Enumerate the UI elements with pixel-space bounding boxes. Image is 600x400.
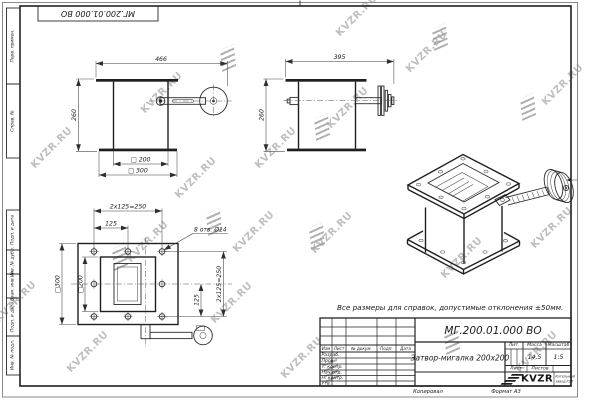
mass-value: 14,5 — [528, 354, 542, 361]
col-ndokum: № докум. — [350, 346, 372, 351]
dim-plan-pitch-right: 125 — [194, 294, 201, 306]
kvzr-logo-text: KVZR — [521, 374, 553, 385]
role-prov: Пров. — [322, 358, 335, 364]
iso-bottom-holes — [419, 239, 508, 264]
part-title-text: Затвор-мигалка 200x200 — [411, 354, 510, 363]
designation-top-box: МГ.200.01.000 ВО — [38, 6, 158, 21]
field-podp-data-2: Подп. и дата — [9, 302, 15, 332]
dim-plan-pitch-total: 2x125=250 — [110, 204, 146, 211]
field-podp-data-1: Подп. и дата — [9, 215, 15, 245]
copied-label: Копировал — [413, 389, 443, 395]
drawing-sheet: KVZR.RUKVZR.RUKVZR.RUKVZR.RUKVZR.RUKVZR.… — [0, 0, 600, 400]
role-tkontr: Т. контр. — [322, 364, 343, 370]
view-front: 466 260 □ 200 □ 300 — [71, 56, 232, 177]
company-line2: завод РЭП — [556, 379, 574, 383]
dim-front-inner: □ 200 — [131, 157, 151, 164]
col-data: Дата — [399, 346, 411, 351]
mass-label: Масса — [527, 342, 542, 348]
dim-side-width: 395 — [334, 54, 346, 61]
field-perv-primen: Перв. примен. — [9, 30, 15, 63]
dim-plan-pitch: 125 — [105, 221, 117, 228]
view-isometric — [408, 155, 577, 275]
col-list: Лист — [333, 346, 345, 351]
role-utv: Утв. — [322, 380, 332, 386]
col-izm: Изм — [322, 346, 331, 351]
title-block: МГ.200.01.000 ВО Затвор-мигалка 200x200 … — [320, 318, 576, 386]
role-nkontr: Н. контр. — [322, 375, 344, 381]
dim-plan-outer: □300 — [55, 275, 62, 293]
scale-label: Масштаб — [548, 342, 570, 348]
kvzr-logo-icon — [501, 374, 523, 385]
dim-front-width: 466 — [155, 56, 167, 63]
reference-note: Все размеры для справок, допустимые откл… — [337, 303, 563, 312]
dim-plan-pitch-total-right: 2x125=250 — [216, 266, 223, 302]
role-razrab: Разраб. — [322, 352, 340, 358]
scale-value: 1:5 — [554, 354, 564, 361]
frame-left-fields: Перв. примен. Справ. № Подп. и дата Инв.… — [7, 8, 21, 375]
format-label: Формат А3 — [491, 389, 521, 395]
designation-text: МГ.200.01.000 ВО — [444, 325, 541, 337]
dim-plan-holes-note: 8 отв. Ø14 — [194, 227, 227, 234]
view-side: 395 260 — [258, 54, 397, 151]
field-vzam-inv: Взам. инв. № — [9, 271, 15, 301]
flap — [436, 173, 488, 202]
sheet-label: Лист — [509, 366, 522, 372]
col-podp: Подп. — [380, 346, 393, 351]
sheets-label: Листов — [530, 366, 548, 372]
role-nachotd: Нач.отд. — [322, 370, 343, 376]
lit-label: Лит. — [508, 342, 520, 348]
dim-plan-inner: □200 — [78, 275, 85, 293]
dim-front-height: 260 — [71, 109, 78, 121]
dim-side-height: 260 — [258, 109, 265, 121]
field-sprav-no: Справ. № — [9, 110, 15, 132]
dim-front-outer: □ 300 — [128, 168, 148, 175]
designation-top-text: МГ.200.01.000 ВО — [61, 9, 135, 18]
field-inv-podl: Инв. № подл. — [9, 340, 15, 370]
plan-lever — [141, 325, 212, 345]
drawing-svg: МГ.200.01.000 ВО Перв. примен. Справ. № … — [0, 0, 600, 400]
company-line1: Котельный — [556, 375, 576, 379]
view-plan: 125 2x125=250 125 2x125=250 □300 □200 8 … — [55, 204, 232, 347]
